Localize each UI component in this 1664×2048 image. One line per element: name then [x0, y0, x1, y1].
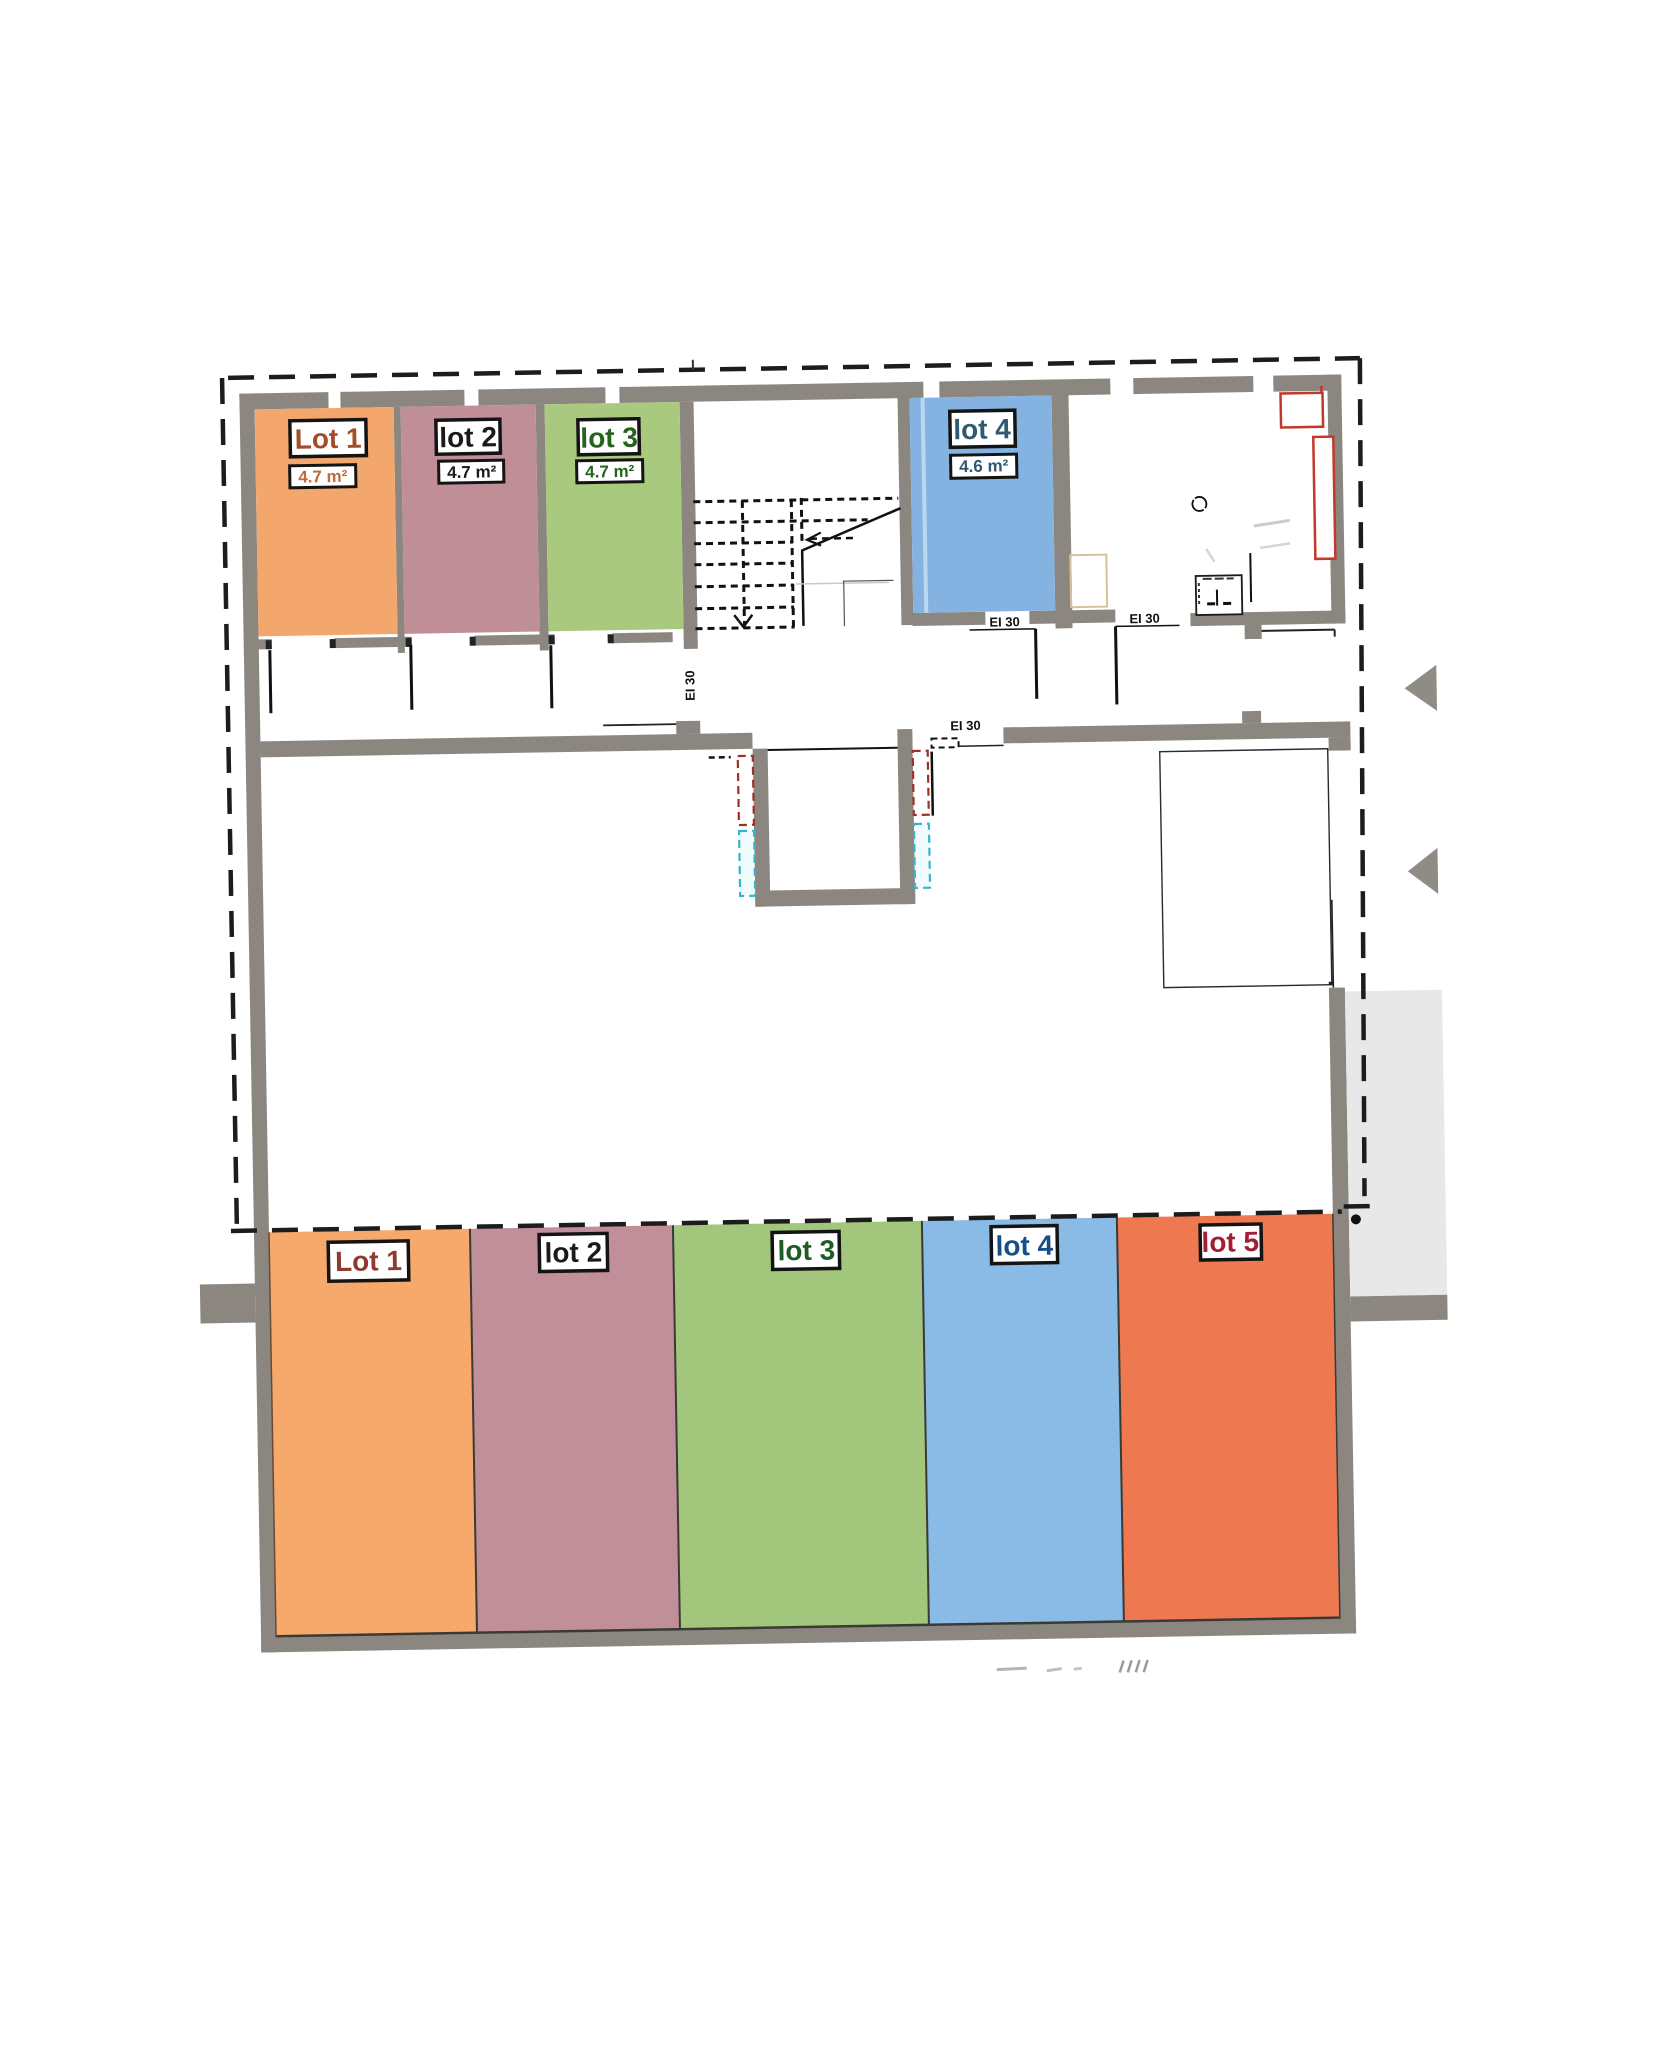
svg-text:lot 2: lot 2 — [439, 421, 497, 453]
svg-text:EI 30: EI 30 — [682, 670, 698, 701]
svg-text:Lot 1: Lot 1 — [335, 1245, 402, 1277]
svg-text:4.7 m²: 4.7 m² — [447, 462, 497, 482]
svg-text:EI 30: EI 30 — [950, 718, 981, 734]
svg-text:lot 4: lot 4 — [953, 413, 1012, 445]
svg-text:lot 3: lot 3 — [777, 1234, 835, 1266]
svg-text:lot 2: lot 2 — [544, 1236, 602, 1268]
svg-text:4.7 m²: 4.7 m² — [585, 462, 635, 482]
svg-text:lot 3: lot 3 — [580, 422, 638, 454]
svg-text:lot 5: lot 5 — [1201, 1226, 1259, 1258]
svg-text:4.7 m²: 4.7 m² — [298, 467, 348, 487]
svg-text:Lot 1: Lot 1 — [294, 423, 361, 455]
svg-text:lot 4: lot 4 — [995, 1230, 1054, 1262]
svg-text:EI 30: EI 30 — [989, 614, 1020, 630]
svg-text:EI 30: EI 30 — [1129, 611, 1160, 627]
svg-text:4.6 m²: 4.6 m² — [959, 456, 1009, 476]
